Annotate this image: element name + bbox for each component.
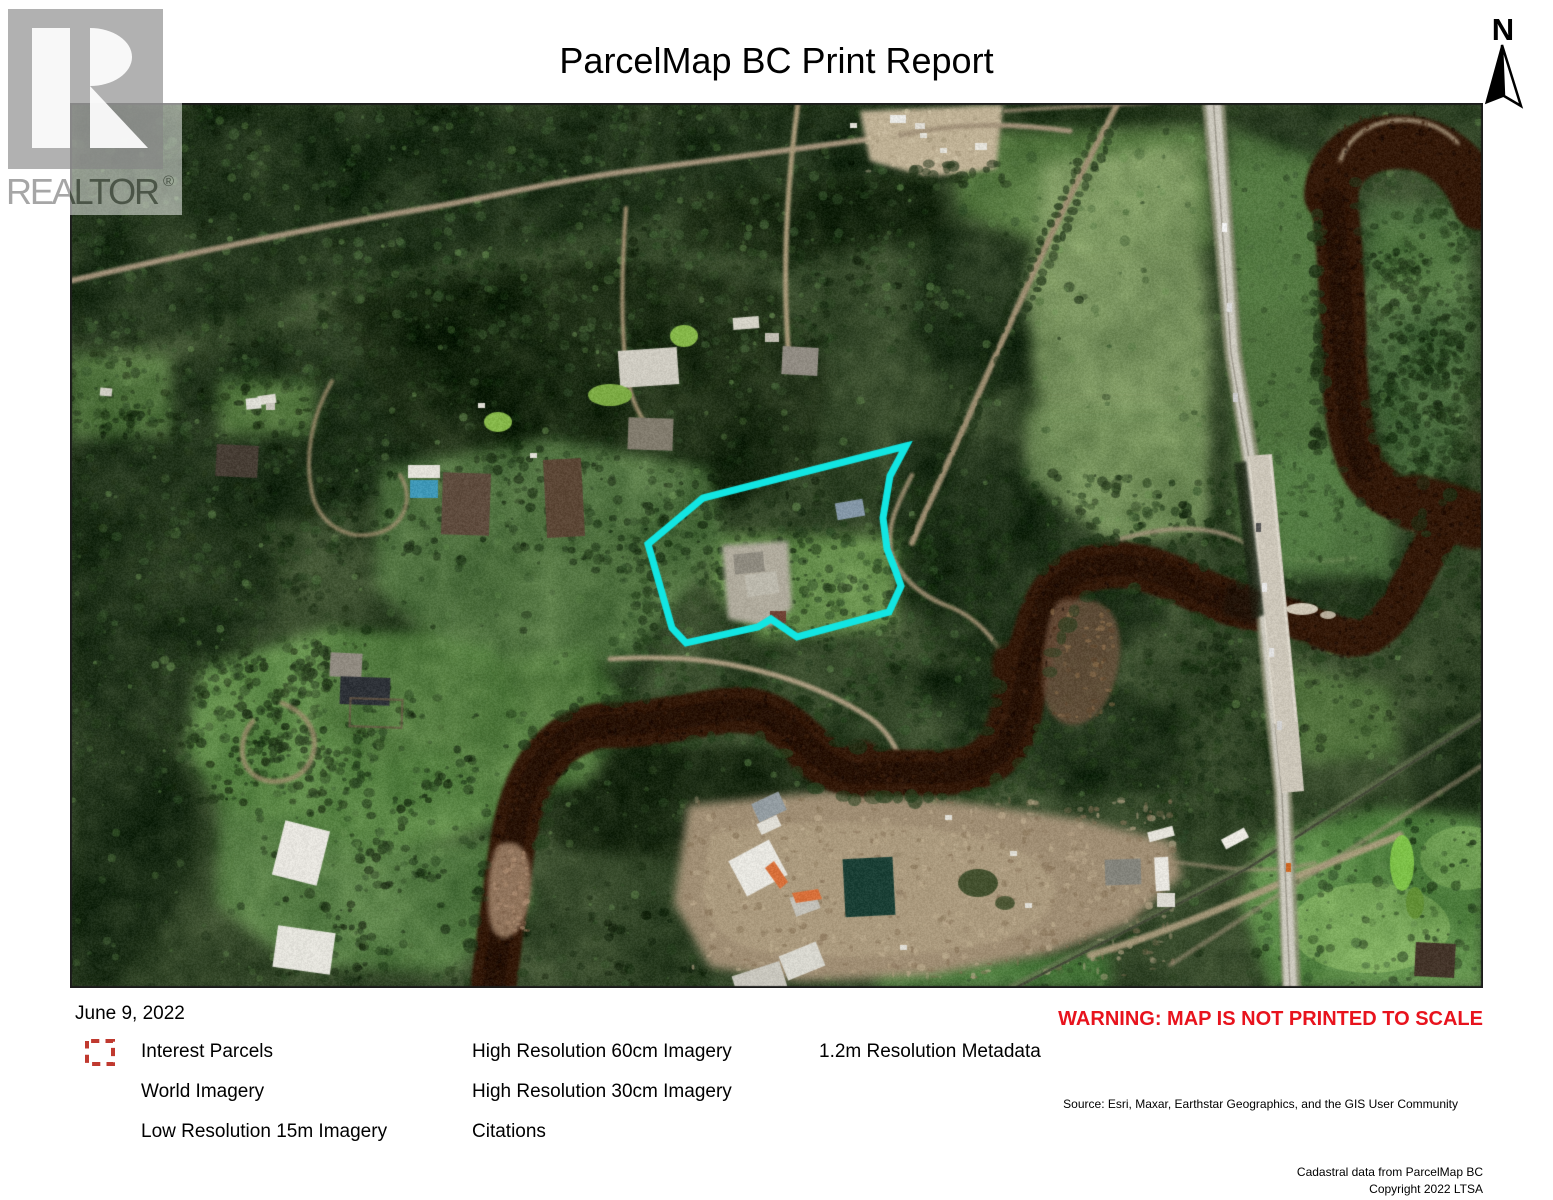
svg-text:N: N [1492,12,1514,47]
svg-text:®: ® [163,173,174,190]
